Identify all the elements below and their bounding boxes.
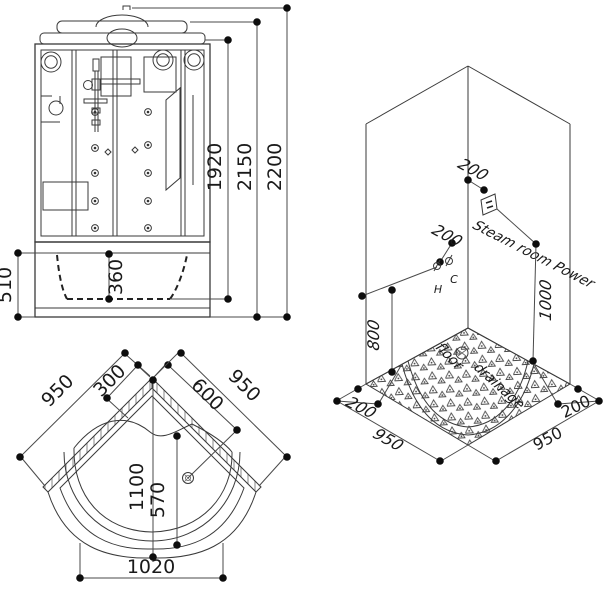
- dim-cap-height: 2150: [234, 143, 256, 191]
- shower-cabin-drawing: 1920 2150 2200 510 360: [0, 0, 609, 598]
- outlet-socket-icon: [481, 194, 497, 215]
- hot-label: H: [434, 283, 442, 296]
- control-panel-left: [101, 57, 131, 96]
- massage-jets: [92, 109, 152, 232]
- dim-inner-depth: 570: [147, 482, 169, 518]
- technical-drawing-canvas: 1920 2150 2200 510 360: [0, 0, 609, 598]
- dim-left-gap: 200: [342, 393, 380, 422]
- dim-right-width: 950: [529, 424, 567, 454]
- tray-outlines: [48, 396, 256, 558]
- panel-crossbar: [101, 79, 140, 84]
- dim-seat-offset: 300: [89, 360, 130, 401]
- dim-right-wall: 950: [224, 365, 265, 406]
- dim-hc-offset: 200: [428, 221, 466, 251]
- ceiling-light-mid: [153, 50, 173, 70]
- tub-base: [35, 242, 228, 317]
- dim-front-width: 1020: [127, 556, 175, 578]
- equipment-box: [43, 182, 88, 210]
- dim-outlet-offset: 200: [454, 155, 492, 185]
- door-frame-profiles: [72, 50, 185, 236]
- control-panel-right: [144, 57, 176, 92]
- floor-slab: [366, 328, 570, 445]
- dim-left-width: 950: [369, 425, 407, 455]
- dim-power-height: 1000: [536, 278, 555, 322]
- plan-walls: [43, 378, 261, 492]
- front-elevation-view: 1920 2150 2200 510 360: [0, 4, 291, 321]
- cabin-body: [35, 44, 210, 242]
- ceiling-light-left: [41, 52, 61, 72]
- front-dimensions-left: 510 360: [0, 249, 127, 321]
- dim-drain-offset: 600: [187, 374, 228, 415]
- dim-body-height: 1920: [204, 143, 226, 191]
- ceiling-light-right: [184, 50, 204, 70]
- hc-height-dim: 800: [364, 286, 396, 376]
- front-dimensions-right: 1920 2150 2200: [132, 4, 291, 321]
- glass-door-lines: [166, 88, 193, 190]
- roof-cap-lower: [40, 33, 205, 44]
- dim-tub-height: 510: [0, 267, 16, 303]
- shelf-detail: [41, 96, 63, 122]
- dim-total-height: 2200: [264, 143, 286, 191]
- water-connections-group: H C 200: [358, 221, 466, 300]
- plan-right-wall-dim: 950: [155, 349, 291, 486]
- cold-label: C: [450, 273, 458, 286]
- plan-top-view: 950 300 600 950: [16, 349, 291, 582]
- dim-right-gap: 200: [557, 392, 595, 421]
- isometric-installation-view: 200 Steam room Power 1000 H C 200: [333, 66, 603, 465]
- dim-diagonal: 1100: [126, 463, 148, 511]
- roof-cap-upper: [57, 21, 187, 33]
- dim-tub-depth: 360: [105, 259, 127, 295]
- antenna: [123, 6, 130, 10]
- dim-hc-height: 800: [364, 318, 383, 352]
- steam-room-power-label: Steam room Power: [469, 218, 599, 292]
